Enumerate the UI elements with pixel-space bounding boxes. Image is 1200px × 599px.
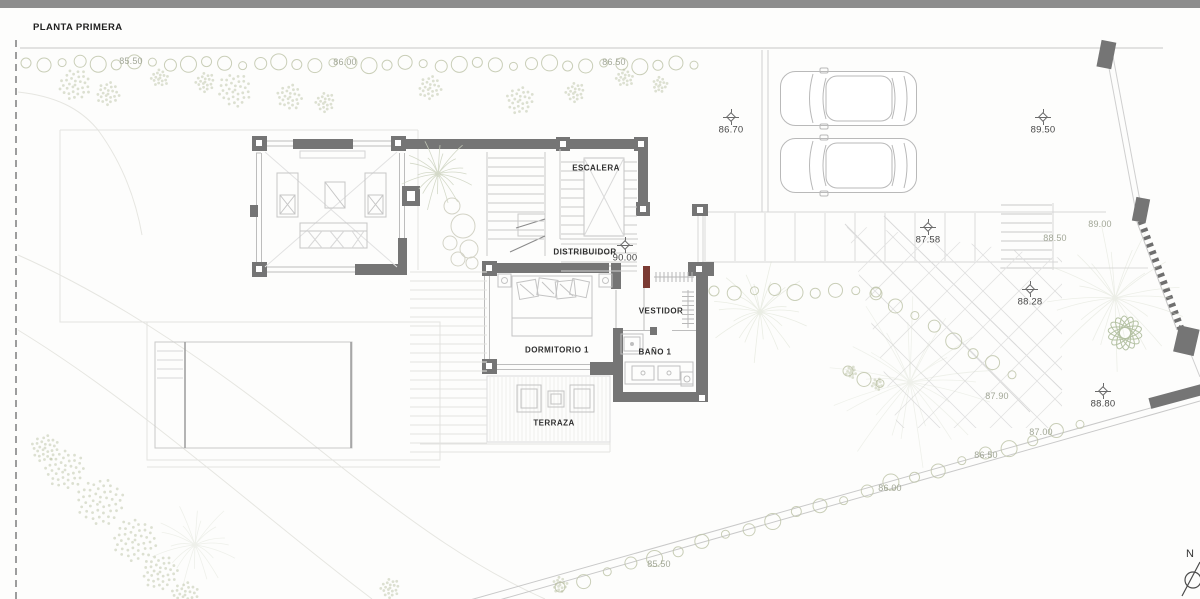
survey-cross-marker	[617, 237, 633, 253]
room-label-vestidor: VESTIDOR	[639, 307, 684, 316]
elevation-label-5: 89.00	[1088, 219, 1112, 229]
elevation-label-8: 90.00	[613, 253, 638, 264]
elevation-label-6: 87.58	[916, 235, 941, 246]
room-label-escalera: ESCALERA	[572, 164, 620, 173]
floor-plan-canvas: PLANTA PRIMERA	[0, 0, 1200, 599]
elevation-label-15: 85.50	[647, 559, 671, 569]
elevation-label-10: 88.80	[1091, 399, 1116, 410]
elevation-label-11: 87.90	[985, 391, 1009, 401]
elevation-label-13: 86.50	[974, 450, 998, 460]
elevation-label-4: 89.50	[1031, 125, 1056, 136]
elevation-label-7: 88.50	[1043, 233, 1067, 243]
elevation-label-0: 85.50	[119, 56, 143, 66]
elevation-label-9: 88.28	[1018, 297, 1043, 308]
survey-cross-marker	[920, 219, 936, 235]
elevation-label-2: 86.50	[602, 57, 626, 67]
elevation-label-14: 86.00	[878, 483, 902, 493]
survey-cross-marker	[1022, 281, 1038, 297]
elevation-label-1: 86.00	[333, 57, 357, 67]
label-layer: ESCALERADISTRIBUIDORDORMITORIO 1VESTIDOR…	[0, 0, 1200, 599]
room-label-distribuidor: DISTRIBUIDOR	[553, 248, 616, 257]
elevation-label-12: 87.00	[1029, 427, 1053, 437]
elevation-label-3: 86.70	[719, 125, 744, 136]
room-label-terraza: TERRAZA	[533, 419, 574, 428]
survey-cross-marker	[1095, 383, 1111, 399]
room-label-dormitorio-1: DORMITORIO 1	[525, 346, 589, 355]
survey-cross-marker	[1035, 109, 1051, 125]
room-label-bano-1: BAÑO 1	[639, 348, 672, 357]
survey-cross-marker	[723, 109, 739, 125]
